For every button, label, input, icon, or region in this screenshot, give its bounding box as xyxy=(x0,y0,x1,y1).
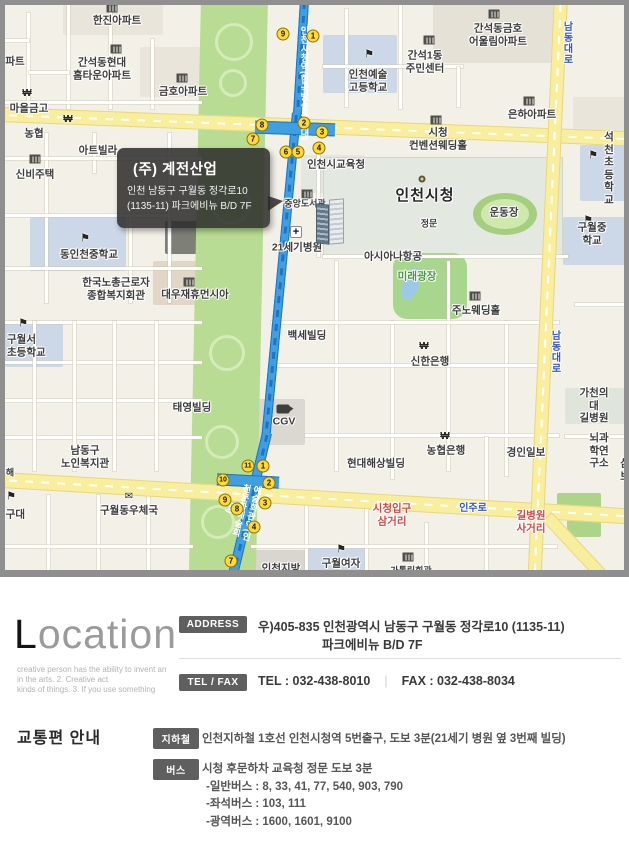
city-hall-dot-marker xyxy=(419,176,426,183)
post-office-icon: ✉ xyxy=(125,492,133,502)
map-label: 현대해상빌딩 xyxy=(347,458,405,471)
street xyxy=(29,71,69,74)
subway-exit-marker: 9 xyxy=(219,494,232,507)
park-path xyxy=(209,335,245,371)
bank-won-icon: ₩ xyxy=(63,115,72,125)
company-building-icon xyxy=(316,199,348,247)
street xyxy=(305,505,308,577)
location-title: Location xyxy=(14,611,177,658)
street xyxy=(365,505,368,577)
building-icon xyxy=(111,45,122,54)
subway-exit-marker: 7 xyxy=(247,133,260,146)
subway-exit-marker: 1 xyxy=(257,460,270,473)
street xyxy=(505,321,508,476)
address-line2: 파크에비뉴 B/D 7F xyxy=(322,634,423,653)
street xyxy=(129,217,132,303)
street xyxy=(147,495,150,577)
bus-directions: 시청 후문하차 교육청 정문 도보 3분-일반버스 : 8, 33, 41, 7… xyxy=(202,761,403,831)
street xyxy=(5,267,202,270)
location-title-cap: L xyxy=(14,611,38,657)
tel-value: TEL : 032-438-8010 xyxy=(258,674,370,688)
building-icon xyxy=(524,97,535,106)
street xyxy=(151,39,154,109)
street xyxy=(73,321,76,471)
map-label: 신비주택 xyxy=(16,169,55,182)
street xyxy=(565,435,629,438)
street xyxy=(5,545,193,548)
building-icon xyxy=(424,36,435,45)
info-section: Location creative person has the ability… xyxy=(0,577,629,855)
street xyxy=(273,364,559,367)
subway-exit-marker: 7 xyxy=(225,555,238,568)
telfax-badge: TEL / FAX xyxy=(179,674,247,691)
street xyxy=(155,321,158,471)
park-path xyxy=(205,425,239,459)
map-label: 한국노총근로자 종합복지회관 xyxy=(82,276,150,301)
street xyxy=(67,5,70,109)
cinema-camera-icon xyxy=(277,405,290,414)
street xyxy=(109,5,112,109)
building-icon xyxy=(302,190,313,199)
street xyxy=(457,67,460,107)
location-page: 91823745611110293847 ⚑⚑⚑⚑⚑⚑⚑₩₩₩₩+✉ 한진아파트… xyxy=(0,0,629,855)
subway-exit-marker: 8 xyxy=(231,503,244,516)
street xyxy=(5,39,29,42)
map-label: 파트 xyxy=(5,56,24,69)
subway-exit-marker: 8 xyxy=(256,119,269,132)
subway-badge: 지하철 xyxy=(153,728,199,749)
company-address-line2: (1135-11) 파크에비뉴 B/D 7F xyxy=(127,199,262,214)
street xyxy=(345,9,348,107)
subway-line-top xyxy=(293,0,309,120)
city-block xyxy=(323,35,397,93)
bus-badge: 버스 xyxy=(153,759,199,780)
building-icon xyxy=(403,553,414,562)
subway-exit-marker: 9 xyxy=(277,28,290,41)
street xyxy=(323,65,463,68)
subway-exit-marker: 5 xyxy=(292,146,305,159)
subway-exit-marker: 1 xyxy=(307,30,320,43)
location-subtitle: creative person has the ability to inven… xyxy=(17,665,166,695)
telfax-separator: | xyxy=(370,674,401,688)
park-path xyxy=(215,23,253,61)
location-title-rest: ocation xyxy=(38,611,177,657)
street xyxy=(391,321,394,479)
building-icon xyxy=(489,10,500,19)
school-flag-icon: ⚑ xyxy=(336,545,346,556)
street xyxy=(575,303,629,306)
bank-won-icon: ₩ xyxy=(419,342,428,352)
subway-exit-marker: 3 xyxy=(316,126,329,139)
subtitle-line: kinds of things. 3. If you use something xyxy=(17,685,166,695)
street xyxy=(47,495,50,577)
map-label: 삼보 xyxy=(620,457,629,482)
subway-exit-marker: 4 xyxy=(248,521,261,534)
school-flag-icon: ⚑ xyxy=(18,319,28,330)
fax-value: FAX : 032-438-8034 xyxy=(402,674,515,688)
street xyxy=(399,5,402,109)
map-layers: 91823745611110293847 ⚑⚑⚑⚑⚑⚑⚑₩₩₩₩+✉ 한진아파트… xyxy=(5,5,624,570)
street xyxy=(305,434,559,437)
map-label: 농협은행 xyxy=(427,445,466,458)
city-block xyxy=(251,550,305,577)
park-path xyxy=(219,69,247,97)
building-icon xyxy=(431,116,442,125)
divider-line xyxy=(179,658,621,659)
map-label: 간석동현대 홈타운아파트 xyxy=(73,56,131,81)
school-flag-icon: ⚑ xyxy=(364,50,374,61)
map-canvas[interactable]: 91823745611110293847 ⚑⚑⚑⚑⚑⚑⚑₩₩₩₩+✉ 한진아파트… xyxy=(0,0,629,577)
bank-won-icon: ₩ xyxy=(440,432,449,442)
city-block xyxy=(433,5,567,63)
bank-won-icon: ₩ xyxy=(22,89,31,99)
street xyxy=(93,133,96,173)
subway-exit-marker: 2 xyxy=(298,117,311,130)
bus-line: -좌석버스 : 103, 111 xyxy=(206,796,403,814)
street xyxy=(323,255,568,258)
company-name: (주) 계전산업 xyxy=(133,158,270,179)
subway-exit-marker: 3 xyxy=(259,497,272,510)
street xyxy=(271,321,559,324)
company-callout: (주) 계전산업 인천 남동구 구월동 정각로10 (1135-11) 파크에비… xyxy=(117,148,270,228)
subway-exit-marker: 4 xyxy=(313,142,326,155)
street xyxy=(251,545,557,548)
map-label: 백세빌딩 xyxy=(288,330,327,343)
street xyxy=(425,523,428,577)
hospital-cross-icon: + xyxy=(290,226,302,238)
subtitle-line: in the arts. 2. Creative act xyxy=(17,675,166,685)
street xyxy=(113,321,116,471)
telfax-values: TEL : 032-438-8010|FAX : 032-438-8034 xyxy=(258,674,515,688)
bus-line: -일반버스 : 8, 33, 41, 77, 540, 903, 790 xyxy=(206,779,403,797)
company-address-line1: 인천 남동구 구월동 정각로10 xyxy=(127,184,262,199)
city-block xyxy=(565,388,629,424)
school-flag-icon: ⚑ xyxy=(588,151,598,162)
bus-line: -광역버스 : 1600, 1601, 9100 xyxy=(206,814,403,832)
street xyxy=(5,101,202,104)
school-flag-icon: ⚑ xyxy=(80,234,90,245)
bus-line: 시청 후문하차 교육청 정문 도보 3분 xyxy=(202,761,403,779)
school-flag-icon: ⚑ xyxy=(6,492,16,503)
map-label: 농협 xyxy=(24,128,43,141)
transport-title: 교통편 안내 xyxy=(17,724,101,748)
address-badge: ADDRESS xyxy=(179,616,247,633)
map-label: 아트빌라 xyxy=(79,145,118,158)
map-label: 지구대 xyxy=(0,509,25,522)
map-label: 남동구 노인복지관 xyxy=(61,444,109,469)
street xyxy=(33,321,36,471)
road-namdong-daero xyxy=(527,0,568,577)
building-icon xyxy=(184,278,195,287)
subway-exit-marker: 11 xyxy=(242,460,255,473)
subway-exit-marker: 10 xyxy=(217,474,230,487)
building-icon xyxy=(177,74,188,83)
school-flag-icon: ⚑ xyxy=(583,216,593,227)
building-icon xyxy=(107,4,118,13)
subway-exit-marker: 2 xyxy=(263,477,276,490)
city-block xyxy=(563,217,629,265)
sports-field-inner xyxy=(481,199,529,229)
address-line1: 우)405-835 인천광역시 남동구 구월동 정각로10 (1135-11) xyxy=(258,616,565,635)
building-icon xyxy=(470,292,481,301)
callout-pointer xyxy=(268,196,283,211)
subtitle-line: creative person has the ability to inven… xyxy=(17,665,166,675)
subway-directions: 인천지하철 1호선 인천시청역 5번출구, 도보 3분(21세기 병원 옆 3번… xyxy=(202,730,566,746)
subway-exit-marker: 6 xyxy=(280,146,293,159)
street xyxy=(97,495,100,577)
building-icon xyxy=(30,155,41,164)
